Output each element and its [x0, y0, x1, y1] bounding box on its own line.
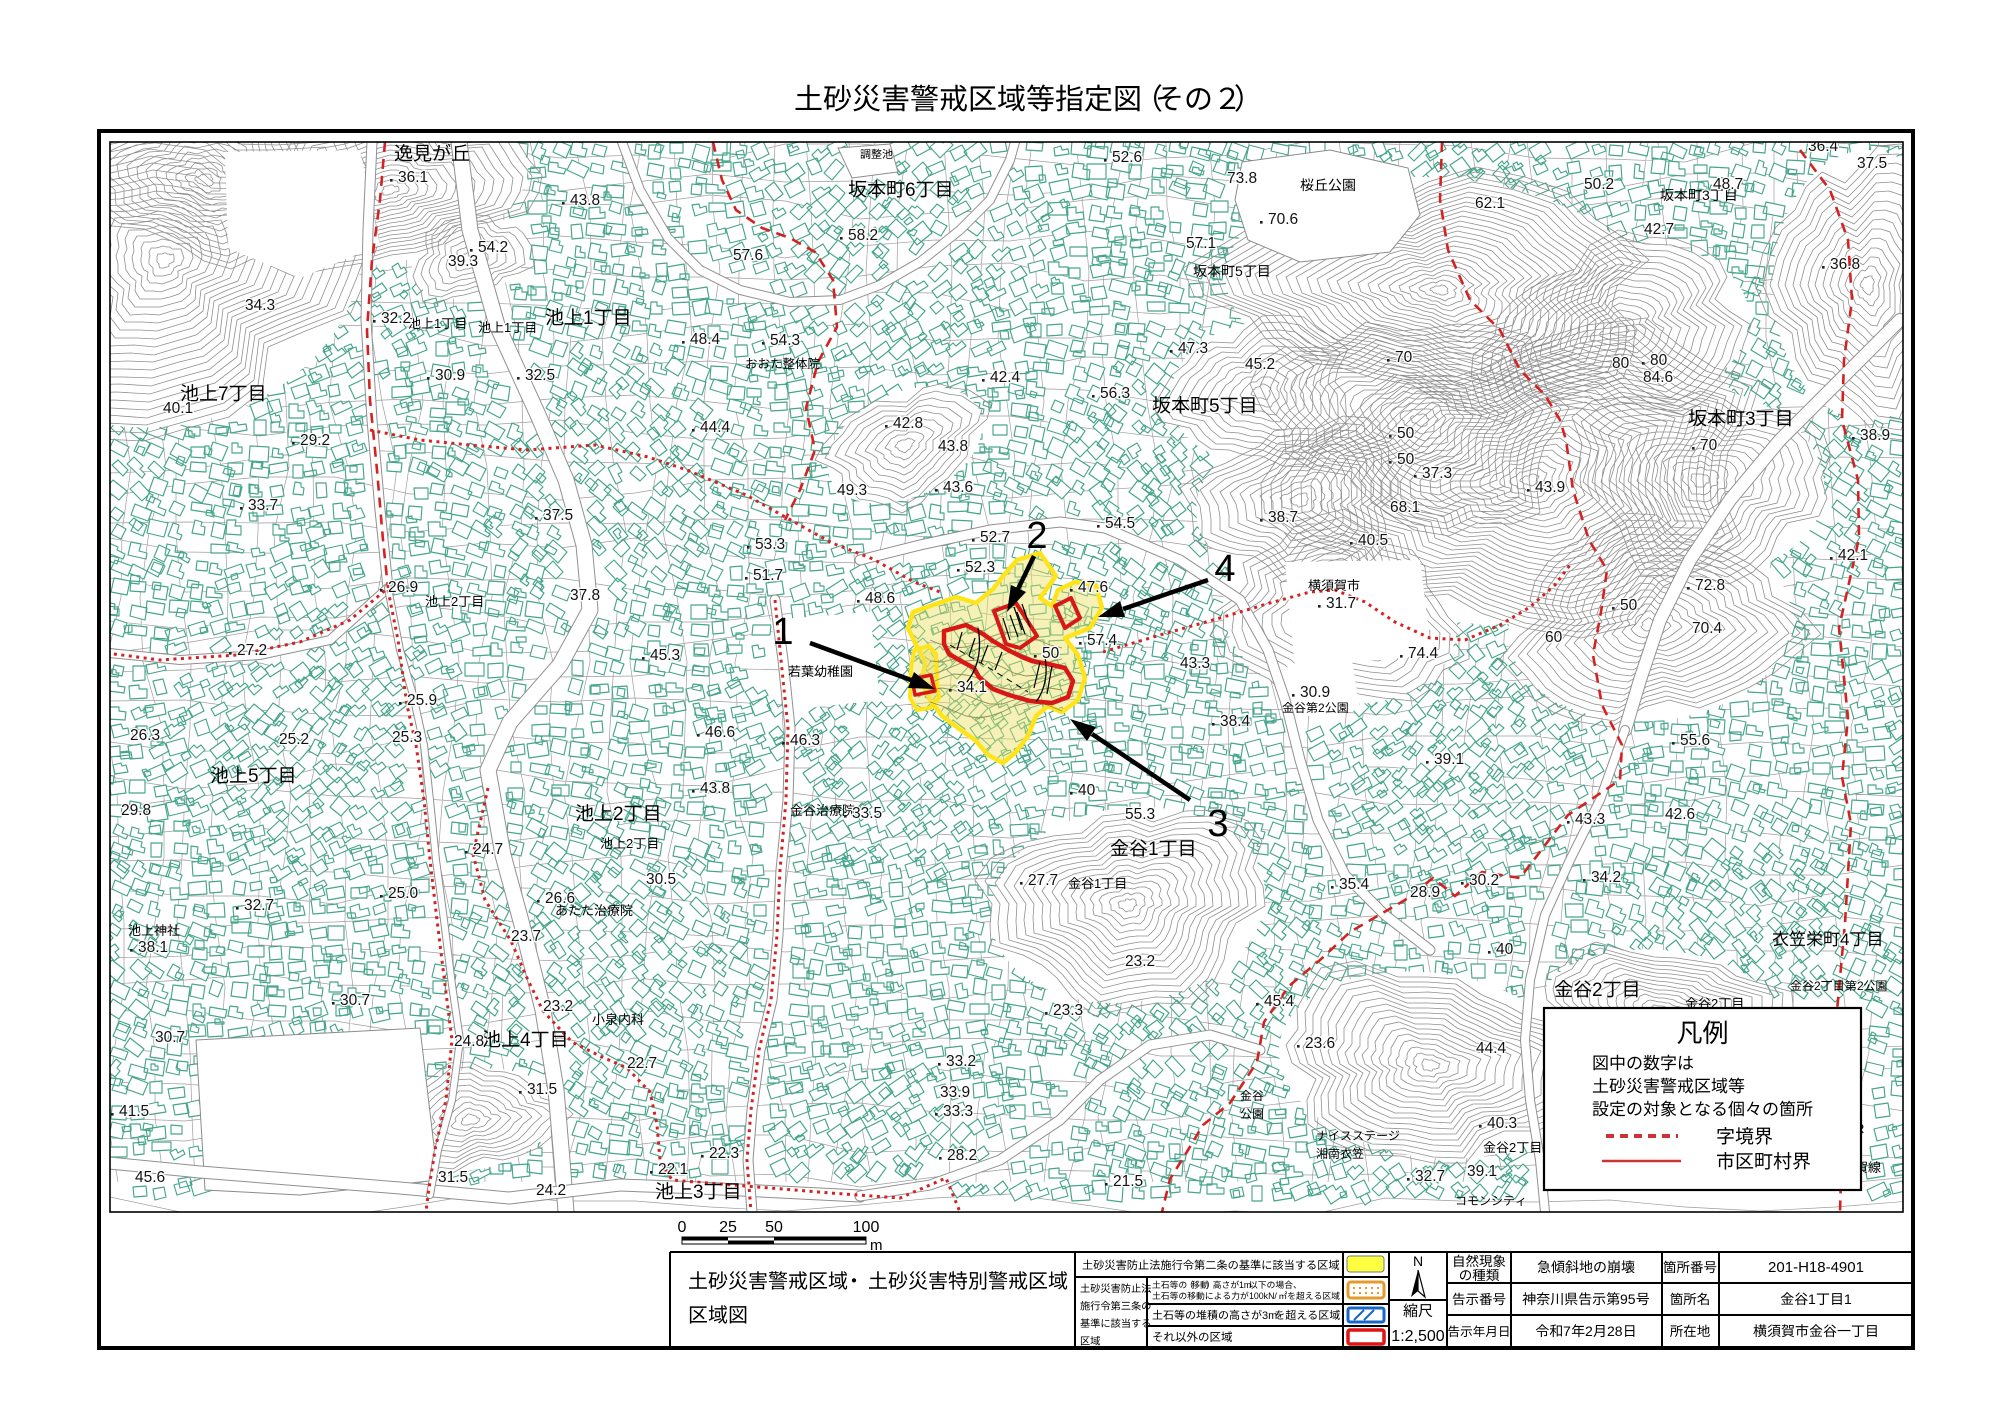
svg-text:26.9: 26.9 [388, 579, 418, 596]
svg-text:37.5: 37.5 [543, 507, 573, 524]
svg-text:55.6: 55.6 [1680, 732, 1710, 749]
svg-text:45.3: 45.3 [650, 647, 680, 664]
svg-text:50: 50 [1397, 451, 1415, 468]
svg-text:1: 1 [1844, 1291, 1852, 1307]
svg-text:2: 2 [1585, 1323, 1593, 1339]
svg-text:201-H18-4901: 201-H18-4901 [1768, 1259, 1864, 1276]
svg-text:1: 1 [1148, 839, 1159, 860]
svg-text:70.6: 70.6 [1268, 211, 1298, 228]
svg-text:23.2: 23.2 [1125, 953, 1155, 970]
svg-text:1m: 1m [1239, 1280, 1251, 1290]
svg-text:32.5: 32.5 [525, 367, 555, 384]
svg-text:38.9: 38.9 [1860, 427, 1890, 444]
svg-text:37.8: 37.8 [570, 587, 600, 604]
svg-text:3: 3 [1207, 803, 1228, 845]
svg-text:24.7: 24.7 [473, 841, 503, 858]
svg-text:70: 70 [1395, 349, 1413, 366]
svg-text:22.7: 22.7 [627, 1055, 657, 1072]
svg-text:32.7: 32.7 [244, 897, 274, 914]
svg-text:44.4: 44.4 [1476, 1040, 1507, 1057]
svg-text:2: 2 [1026, 515, 1047, 557]
svg-text:32.7: 32.7 [1415, 1168, 1445, 1185]
svg-text:3: 3 [1702, 187, 1710, 203]
svg-text:7: 7 [218, 384, 229, 405]
svg-text:50.2: 50.2 [1584, 176, 1614, 193]
svg-text:40.1: 40.1 [163, 400, 193, 417]
svg-text:27.2: 27.2 [237, 642, 267, 659]
svg-text:3m: 3m [1262, 1310, 1277, 1322]
svg-text:70: 70 [1700, 437, 1718, 454]
svg-text:37.3: 37.3 [1422, 465, 1452, 482]
svg-text:52.3: 52.3 [965, 559, 995, 576]
svg-text:39.3: 39.3 [448, 253, 478, 270]
svg-text:33.3: 33.3 [943, 1103, 973, 1120]
svg-text:40: 40 [1078, 782, 1096, 799]
svg-text:22.3: 22.3 [709, 1145, 739, 1162]
svg-text:33.5: 33.5 [852, 805, 882, 822]
svg-text:74.4: 74.4 [1408, 645, 1439, 662]
svg-text:62.1: 62.1 [1475, 195, 1505, 212]
svg-text:31.7: 31.7 [1326, 595, 1356, 612]
svg-text:5: 5 [1209, 396, 1220, 417]
svg-text:23.3: 23.3 [1053, 1002, 1083, 1019]
svg-text:47.3: 47.3 [1178, 340, 1208, 357]
svg-text:1:2,500: 1:2,500 [1391, 1328, 1444, 1345]
svg-text:24.2: 24.2 [536, 1182, 566, 1199]
svg-text:42.4: 42.4 [990, 369, 1021, 386]
svg-text:2: 2 [451, 594, 458, 609]
svg-text:60: 60 [1545, 629, 1563, 646]
svg-text:30.7: 30.7 [340, 992, 370, 1009]
svg-text:30.5: 30.5 [646, 871, 676, 888]
svg-text:1: 1 [504, 320, 511, 335]
svg-text:72.8: 72.8 [1695, 577, 1725, 594]
svg-text:2: 2 [1509, 1140, 1516, 1155]
svg-text:4: 4 [1840, 930, 1849, 949]
svg-text:42.7: 42.7 [1644, 221, 1674, 238]
svg-text:43.6: 43.6 [943, 479, 973, 496]
svg-text:2: 2 [1318, 701, 1325, 715]
svg-text:4: 4 [1214, 548, 1235, 590]
svg-text:100kN/: 100kN/ [1249, 1291, 1277, 1301]
svg-text:35.4: 35.4 [1339, 876, 1370, 893]
svg-text:23.2: 23.2 [543, 998, 573, 1015]
svg-text:41.5: 41.5 [119, 1103, 149, 1120]
svg-text:30.2: 30.2 [1469, 872, 1499, 889]
svg-text:33.9: 33.9 [940, 1084, 970, 1101]
svg-text:34.2: 34.2 [1591, 869, 1621, 886]
svg-text:49.3: 49.3 [837, 482, 867, 499]
svg-text:100: 100 [853, 1219, 880, 1236]
svg-text:3: 3 [693, 1182, 704, 1203]
svg-text:51.7: 51.7 [753, 567, 783, 584]
svg-text:34.3: 34.3 [245, 297, 275, 314]
svg-text:80: 80 [1650, 352, 1668, 369]
svg-text:29.8: 29.8 [121, 802, 151, 819]
svg-text:1: 1 [434, 316, 441, 331]
svg-text:54.3: 54.3 [770, 332, 800, 349]
svg-text:55.3: 55.3 [1125, 806, 1155, 823]
svg-text:2: 2 [1857, 979, 1864, 993]
svg-text:5: 5 [1235, 263, 1243, 279]
svg-text:48.7: 48.7 [1713, 176, 1743, 193]
svg-text:26.6: 26.6 [545, 890, 575, 907]
svg-text:43.8: 43.8 [570, 192, 600, 209]
svg-text:42.1: 42.1 [1838, 547, 1868, 564]
svg-text:95: 95 [1620, 1291, 1636, 1307]
svg-text:5: 5 [248, 766, 259, 787]
svg-text:1: 1 [1094, 876, 1101, 891]
svg-text:28.2: 28.2 [947, 1147, 977, 1164]
svg-text:53.3: 53.3 [755, 536, 785, 553]
svg-text:31.5: 31.5 [438, 1169, 468, 1186]
svg-text:57.4: 57.4 [1087, 632, 1118, 649]
svg-text:21.5: 21.5 [1113, 1173, 1143, 1190]
svg-text:73.8: 73.8 [1227, 170, 1257, 187]
svg-text:31.5: 31.5 [527, 1081, 557, 1098]
svg-text:25.0: 25.0 [388, 885, 419, 902]
svg-text:32.2: 32.2 [381, 310, 411, 327]
svg-text:43.9: 43.9 [1535, 479, 1565, 496]
svg-text:43.8: 43.8 [700, 780, 730, 797]
svg-text:68.1: 68.1 [1390, 499, 1420, 516]
svg-text:25.3: 25.3 [392, 729, 422, 746]
svg-text:40.5: 40.5 [1358, 532, 1388, 549]
svg-text:30.9: 30.9 [435, 367, 465, 384]
svg-text:45.2: 45.2 [1245, 356, 1275, 373]
svg-text:N: N [1413, 1253, 1423, 1269]
svg-text:22.1: 22.1 [658, 1161, 688, 1178]
svg-text:0: 0 [678, 1219, 687, 1236]
svg-text:26.3: 26.3 [130, 727, 160, 744]
svg-text:1: 1 [772, 611, 793, 653]
svg-text:2: 2 [1592, 980, 1603, 1001]
svg-text:4: 4 [520, 1030, 531, 1051]
svg-text:48.4: 48.4 [690, 331, 721, 348]
svg-text:6: 6 [905, 180, 916, 201]
svg-text:57.6: 57.6 [733, 247, 763, 264]
svg-text:43.8: 43.8 [938, 438, 968, 455]
svg-text:34.1: 34.1 [957, 679, 987, 696]
svg-text:2: 2 [1814, 979, 1821, 993]
svg-text:50: 50 [1620, 597, 1638, 614]
svg-text:54.2: 54.2 [478, 239, 508, 256]
svg-text:25.2: 25.2 [279, 731, 309, 748]
svg-text:2: 2 [626, 836, 633, 851]
svg-text:36.8: 36.8 [1830, 256, 1860, 273]
svg-text:58.2: 58.2 [848, 227, 878, 244]
svg-text:44.4: 44.4 [700, 419, 731, 436]
svg-text:7: 7 [1563, 1323, 1571, 1339]
svg-text:39.1: 39.1 [1434, 751, 1464, 768]
svg-text:45.6: 45.6 [135, 1169, 165, 1186]
svg-text:24.8: 24.8 [454, 1033, 484, 1050]
svg-text:29.2: 29.2 [300, 432, 330, 449]
svg-text:47.6: 47.6 [1078, 579, 1108, 596]
svg-text:43.3: 43.3 [1575, 811, 1605, 828]
svg-text:38.4: 38.4 [1220, 713, 1251, 730]
svg-text:50: 50 [1042, 645, 1060, 662]
svg-text:46.6: 46.6 [705, 724, 735, 741]
svg-text:84.6: 84.6 [1643, 369, 1673, 386]
svg-text:27.7: 27.7 [1028, 872, 1058, 889]
svg-text:52.6: 52.6 [1112, 149, 1142, 166]
svg-text:30.9: 30.9 [1300, 684, 1330, 701]
svg-text:36.1: 36.1 [398, 169, 428, 186]
svg-text:43.3: 43.3 [1180, 655, 1210, 672]
svg-text:48.6: 48.6 [865, 590, 895, 607]
svg-text:28.9: 28.9 [1410, 884, 1440, 901]
svg-text:40: 40 [1496, 941, 1514, 958]
svg-text:46.3: 46.3 [790, 732, 820, 749]
svg-text:28: 28 [1607, 1323, 1623, 1339]
svg-text:33.2: 33.2 [946, 1053, 976, 1070]
svg-text:54.5: 54.5 [1105, 515, 1135, 532]
svg-text:2: 2 [613, 804, 624, 825]
svg-text:23.7: 23.7 [511, 928, 541, 945]
svg-text:50: 50 [765, 1219, 783, 1236]
svg-text:25.9: 25.9 [407, 692, 437, 709]
svg-text:39.1: 39.1 [1467, 1163, 1497, 1180]
svg-text:50: 50 [1397, 425, 1415, 442]
svg-text:70.4: 70.4 [1692, 620, 1723, 637]
svg-text:37.5: 37.5 [1857, 155, 1887, 172]
svg-text:1: 1 [1808, 1291, 1816, 1307]
svg-text:23.6: 23.6 [1305, 1035, 1335, 1052]
svg-text:42.8: 42.8 [893, 415, 923, 432]
svg-text:33.7: 33.7 [248, 497, 278, 514]
svg-text:45.4: 45.4 [1264, 993, 1295, 1010]
svg-text:30.7: 30.7 [155, 1029, 185, 1046]
svg-text:3: 3 [1745, 409, 1756, 430]
svg-text:40.3: 40.3 [1487, 1115, 1517, 1132]
svg-text:56.3: 56.3 [1100, 385, 1130, 402]
svg-text:57.1: 57.1 [1186, 235, 1216, 252]
svg-text:25: 25 [719, 1219, 737, 1236]
svg-text:42.6: 42.6 [1665, 806, 1695, 823]
svg-text:80: 80 [1612, 355, 1630, 372]
svg-text:38.1: 38.1 [138, 939, 168, 956]
svg-text:38.7: 38.7 [1268, 509, 1298, 526]
svg-text:52.7: 52.7 [980, 529, 1010, 546]
svg-text:1: 1 [583, 308, 594, 329]
